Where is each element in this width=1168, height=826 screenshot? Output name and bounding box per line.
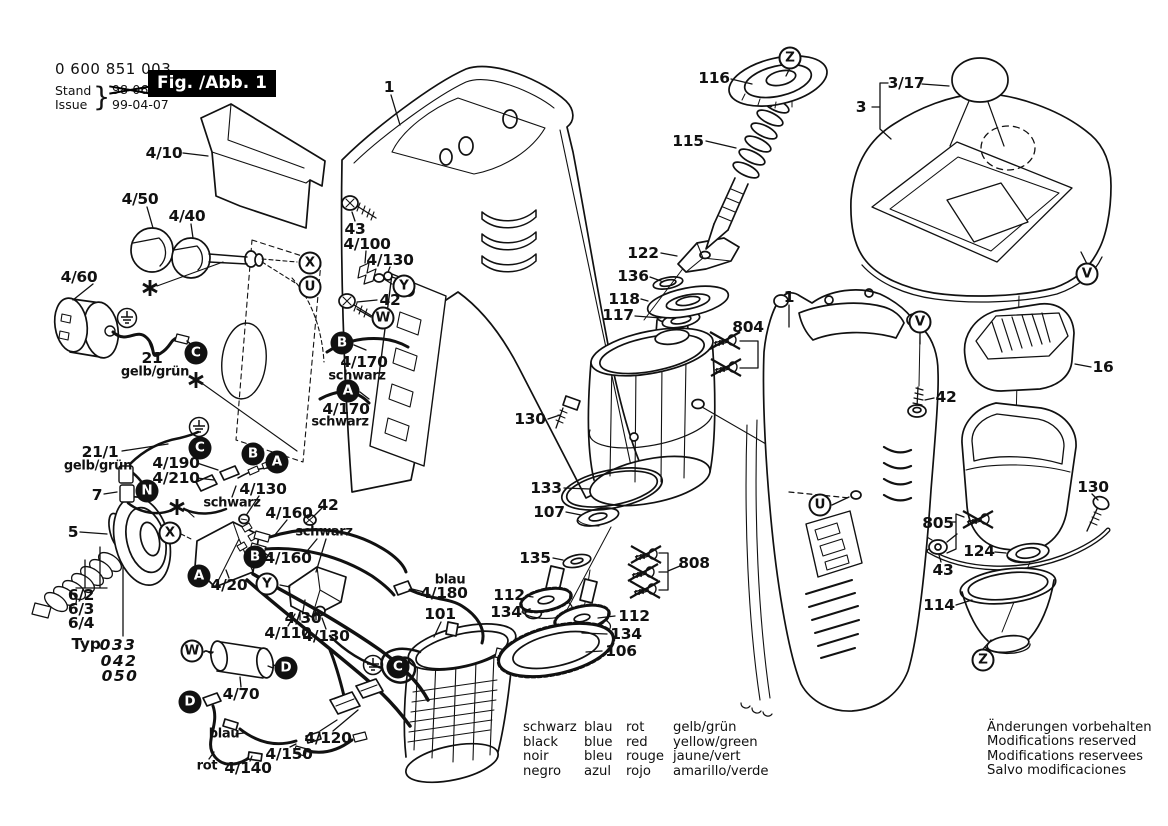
part-label: 3/17 bbox=[888, 74, 925, 92]
legend-term: yellow/green bbox=[673, 736, 769, 751]
callout-C: C bbox=[189, 437, 212, 460]
callout-W: W bbox=[372, 307, 395, 330]
part-label: 7 bbox=[92, 486, 103, 504]
part-label: 805 bbox=[922, 514, 953, 532]
washer-135 bbox=[562, 552, 592, 570]
issue-label: Issue bbox=[55, 98, 91, 112]
legend-term: bleu bbox=[584, 750, 626, 765]
legend-term: blau bbox=[584, 721, 626, 736]
part-label: 4/50 bbox=[122, 190, 159, 208]
legend-term: gelb/grün bbox=[673, 721, 769, 736]
issue-block: Stand Issue bbox=[55, 84, 91, 111]
callout-C: C bbox=[387, 656, 410, 679]
asterisk-marker-icon bbox=[140, 278, 160, 298]
top-cover-part bbox=[201, 104, 325, 228]
part-label: 116 bbox=[698, 69, 729, 87]
callout-Z: Z bbox=[972, 649, 995, 672]
left-housing-half bbox=[218, 67, 643, 498]
callout-B: B bbox=[242, 443, 265, 466]
worm-shaft-115 bbox=[706, 85, 791, 249]
hopper-insert-16 bbox=[965, 304, 1074, 391]
part-label: gelb/grün bbox=[121, 365, 189, 380]
callout-B: B bbox=[331, 332, 354, 355]
part-label: 115 bbox=[672, 132, 703, 150]
part-label: 114 bbox=[923, 596, 954, 614]
part-label: gelb/grün bbox=[64, 459, 132, 474]
callout-Y: Y bbox=[256, 573, 279, 596]
figure-label: Fig. /Abb. 1 bbox=[148, 70, 276, 97]
part-label: Typ bbox=[71, 635, 100, 653]
connectors-4-120 bbox=[330, 679, 383, 714]
part-label: 122 bbox=[627, 244, 658, 262]
part-label: 112 bbox=[618, 607, 649, 625]
crossed-out-part-icon bbox=[628, 579, 662, 601]
part-label: 106 bbox=[605, 642, 636, 660]
legend-term: red bbox=[626, 736, 673, 751]
part-label: 3 bbox=[856, 98, 867, 116]
callout-B: B bbox=[244, 546, 267, 569]
callout-X: X bbox=[299, 252, 322, 275]
part-label: 16 bbox=[1093, 358, 1114, 376]
callout-W: W bbox=[181, 640, 204, 663]
callout-A: A bbox=[266, 451, 289, 474]
knob-4-40 bbox=[172, 238, 247, 278]
hopper-cover-3 bbox=[851, 58, 1111, 302]
part-label: 4/180 bbox=[420, 584, 467, 602]
superseded-date: 98-06 bbox=[112, 82, 148, 97]
callout-U: U bbox=[299, 276, 322, 299]
asterisk-marker-icon bbox=[186, 370, 206, 390]
stand-label: Stand bbox=[55, 84, 91, 98]
part-label: rot bbox=[197, 759, 218, 774]
modifications-note: Änderungen vorbehaltenModifications rese… bbox=[987, 721, 1152, 779]
part-label: 107 bbox=[533, 503, 564, 521]
part-label: 6/4 bbox=[68, 614, 94, 632]
part-label: 117 bbox=[602, 306, 633, 324]
callout-Y: Y bbox=[393, 275, 416, 298]
part-label: 4/210 bbox=[152, 469, 199, 487]
part-label: 42 bbox=[318, 496, 339, 514]
callout-D: D bbox=[179, 691, 202, 714]
callout-N: N bbox=[136, 480, 159, 503]
part-label: 050 bbox=[102, 667, 139, 685]
part-label: schwarz bbox=[328, 369, 385, 384]
footnote-line: Modifications reservees bbox=[987, 750, 1152, 764]
part-label: 136 bbox=[617, 267, 648, 285]
part-label: 1 bbox=[384, 78, 395, 96]
part-label: 135 bbox=[519, 549, 550, 567]
part-label: 133 bbox=[530, 479, 561, 497]
part-label: blau bbox=[209, 727, 240, 742]
part-label: 134 bbox=[490, 603, 521, 621]
crossed-out-part-icon bbox=[961, 509, 995, 531]
issue-date: 99-04-07 bbox=[112, 97, 169, 112]
legend-term: blue bbox=[584, 736, 626, 751]
part-label: 808 bbox=[678, 554, 709, 572]
legend-term: azul bbox=[584, 765, 626, 780]
legend-term: schwarz bbox=[523, 721, 584, 736]
ground-symbol-icon bbox=[116, 307, 138, 329]
part-label: 4/140 bbox=[224, 759, 271, 777]
knob-4-50 bbox=[131, 228, 173, 272]
issue-brace: } bbox=[93, 82, 110, 113]
part-label: 4/130 bbox=[366, 251, 413, 269]
right-housing-half bbox=[741, 289, 938, 716]
callout-D: D bbox=[275, 657, 298, 680]
part-label: 4/40 bbox=[169, 207, 206, 225]
part-label: 4/160 bbox=[265, 504, 312, 522]
callout-X: X bbox=[159, 522, 182, 545]
part-label: 4/130 bbox=[239, 480, 286, 498]
part-label: 4/20 bbox=[211, 576, 248, 594]
legend-term: negro bbox=[523, 765, 584, 780]
parts-diagram-page: 0 600 851 003 Stand Issue } 98-06 99-04-… bbox=[0, 0, 1168, 826]
color-legend: schwarzblaurotgelb/grünblackblueredyello… bbox=[523, 721, 769, 780]
legend-term: rot bbox=[626, 721, 673, 736]
funnel-114 bbox=[958, 562, 1057, 654]
part-label: 4/70 bbox=[223, 685, 260, 703]
part-label: 4/150 bbox=[265, 745, 312, 763]
callout-V: V bbox=[1076, 263, 1099, 286]
screw-4-130-mid bbox=[239, 515, 249, 524]
crossed-out-part-icon bbox=[708, 330, 742, 352]
footnote-line: Modifications reserved bbox=[987, 735, 1152, 749]
part-label: 1 bbox=[784, 288, 795, 306]
part-label: 4/160 bbox=[264, 549, 311, 567]
part-label: 112 bbox=[493, 586, 524, 604]
legend-term: jaune/vert bbox=[673, 750, 769, 765]
part-label: 4/130 bbox=[302, 627, 349, 645]
callout-A: A bbox=[188, 565, 211, 588]
callout-A: A bbox=[337, 380, 360, 403]
part-label: 4/60 bbox=[61, 268, 98, 286]
part-label: schwarz bbox=[311, 415, 368, 430]
part-label: 43 bbox=[933, 561, 954, 579]
footnote-line: Änderungen vorbehalten bbox=[987, 721, 1152, 735]
bolt-130-right bbox=[1087, 494, 1111, 531]
part-label: 124 bbox=[963, 542, 994, 560]
part-label: schwarz bbox=[295, 525, 352, 540]
legend-term: noir bbox=[523, 750, 584, 765]
legend-term: rojo bbox=[626, 765, 673, 780]
crossed-out-part-icon bbox=[709, 357, 743, 379]
part-label: 101 bbox=[424, 605, 455, 623]
footnote-line: Salvo modificaciones bbox=[987, 764, 1152, 778]
callout-V: V bbox=[909, 311, 932, 334]
legend-term: black bbox=[523, 736, 584, 751]
asterisk-marker-icon bbox=[167, 497, 187, 517]
part-label: 130 bbox=[514, 410, 545, 428]
part-label: 42 bbox=[936, 388, 957, 406]
legend-term: amarillo/verde bbox=[673, 765, 769, 780]
callout-U: U bbox=[809, 494, 832, 517]
exploded-diagram-artwork bbox=[0, 0, 1168, 826]
ground-symbol-icon bbox=[362, 654, 384, 676]
ground-symbol-icon bbox=[188, 416, 210, 438]
callout-Z: Z bbox=[779, 47, 802, 70]
part-label: 5 bbox=[68, 523, 79, 541]
legend-term: rouge bbox=[626, 750, 673, 765]
part-label: 4/10 bbox=[146, 144, 183, 162]
part-label: 130 bbox=[1077, 478, 1108, 496]
ring-gear-106 bbox=[494, 615, 617, 686]
part-label: 134 bbox=[610, 625, 641, 643]
callout-C: C bbox=[185, 342, 208, 365]
